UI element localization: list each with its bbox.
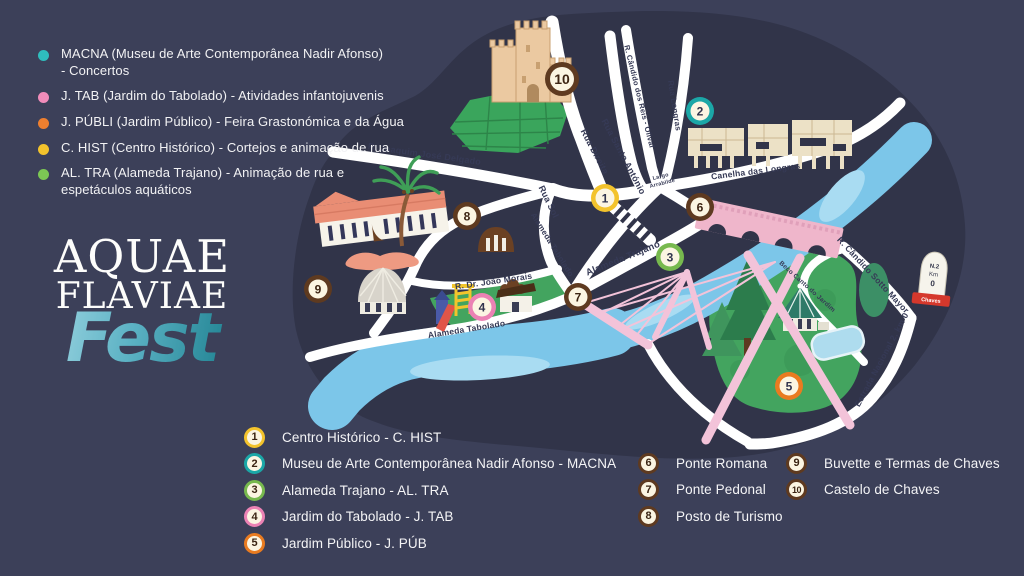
map-marker-6: 6 bbox=[686, 193, 714, 221]
activities-legend: MACNA (Museu de Arte Contemporânea Nadir… bbox=[38, 46, 410, 198]
location-label: Museu de Arte Contemporânea Nadir Afonso… bbox=[282, 456, 616, 471]
activity-label: AL. TRA (Alameda Trajano) - Animação de … bbox=[61, 165, 344, 198]
map-marker-2: 2 bbox=[686, 97, 714, 125]
activity-label: C. HIST (Centro Histórico) - Cortejos e … bbox=[61, 140, 389, 157]
map-marker-7: 7 bbox=[564, 283, 592, 311]
map-marker-1: 1 bbox=[591, 184, 619, 212]
svg-text:4: 4 bbox=[479, 300, 486, 314]
festival-map-poster: N.2 Km 0 Chaves R. Joaquim José DelgadoR… bbox=[0, 0, 1024, 576]
location-number-badge: 10 bbox=[786, 479, 807, 500]
location-number-badge: 7 bbox=[638, 479, 659, 500]
location-legend-item: 2Museu de Arte Contemporânea Nadir Afons… bbox=[244, 451, 616, 478]
activity-legend-item: AL. TRA (Alameda Trajano) - Animação de … bbox=[38, 165, 410, 198]
activity-legend-item: J. TAB (Jardim do Tabolado) - Atividades… bbox=[38, 88, 410, 105]
location-label: Jardim Público - J. PÚB bbox=[282, 536, 427, 551]
location-label: Castelo de Chaves bbox=[824, 482, 940, 497]
location-number-badge: 8 bbox=[638, 506, 659, 527]
location-legend-item: 9Buvette e Termas de Chaves bbox=[786, 450, 1000, 477]
milestone-n2: N.2 bbox=[929, 264, 940, 271]
location-number-badge: 6 bbox=[638, 453, 659, 474]
location-legend-item: 4Jardim do Tabolado - J. TAB bbox=[244, 504, 616, 531]
location-label: Posto de Turismo bbox=[676, 509, 783, 524]
activity-dot-icon bbox=[38, 169, 49, 180]
svg-text:10: 10 bbox=[554, 71, 570, 87]
location-legend-item: 6Ponte Romana bbox=[638, 450, 783, 477]
locations-legend-column-3: 9Buvette e Termas de Chaves10Castelo de … bbox=[786, 450, 1000, 503]
activity-legend-item: J. PÚBLI (Jardim Público) - Feira Grasto… bbox=[38, 114, 410, 131]
activity-label: J. PÚBLI (Jardim Público) - Feira Grasto… bbox=[61, 114, 404, 131]
location-legend-item: 7Ponte Pedonal bbox=[638, 477, 783, 504]
location-legend-item: 1Centro Histórico - C. HIST bbox=[244, 424, 616, 451]
festival-logo: AQUAE FLAVIAE Fest bbox=[28, 236, 256, 371]
logo-aquae: AQUAE bbox=[28, 236, 256, 279]
map-marker-9: 9 bbox=[304, 275, 332, 303]
svg-text:9: 9 bbox=[315, 282, 322, 296]
location-legend-item: 8Posto de Turismo bbox=[638, 503, 783, 530]
map-marker-3: 3 bbox=[656, 243, 684, 271]
location-number-badge: 4 bbox=[244, 506, 265, 527]
svg-text:5: 5 bbox=[786, 379, 793, 393]
location-label: Buvette e Termas de Chaves bbox=[824, 456, 1000, 471]
svg-text:6: 6 bbox=[697, 200, 704, 214]
svg-text:7: 7 bbox=[575, 290, 582, 304]
location-legend-item: 10Castelo de Chaves bbox=[786, 477, 1000, 504]
svg-text:1: 1 bbox=[602, 191, 609, 205]
activity-legend-item: C. HIST (Centro Histórico) - Cortejos e … bbox=[38, 140, 410, 157]
location-legend-item: 5Jardim Público - J. PÚB bbox=[244, 530, 616, 557]
location-number-badge: 5 bbox=[244, 533, 265, 554]
map-marker-4: 4 bbox=[468, 293, 496, 321]
location-label: Ponte Pedonal bbox=[676, 482, 766, 497]
location-number-badge: 2 bbox=[244, 453, 265, 474]
activity-label: J. TAB (Jardim do Tabolado) - Atividades… bbox=[61, 88, 384, 105]
activity-dot-icon bbox=[38, 118, 49, 129]
activity-dot-icon bbox=[38, 144, 49, 155]
activity-label: MACNA (Museu de Arte Contemporânea Nadir… bbox=[61, 46, 383, 79]
locations-legend-column-1: 1Centro Histórico - C. HIST2Museu de Art… bbox=[244, 424, 616, 557]
location-label: Jardim do Tabolado - J. TAB bbox=[282, 509, 454, 524]
location-legend-item: 3Alameda Trajano - AL. TRA bbox=[244, 477, 616, 504]
activity-dot-icon bbox=[38, 92, 49, 103]
location-number-badge: 1 bbox=[244, 427, 265, 448]
activity-dot-icon bbox=[38, 50, 49, 61]
milestone-km: Km bbox=[929, 272, 939, 279]
location-number-badge: 9 bbox=[786, 453, 807, 474]
map-marker-5: 5 bbox=[775, 372, 803, 400]
location-label: Alameda Trajano - AL. TRA bbox=[282, 483, 449, 498]
map-marker-10: 10 bbox=[545, 62, 579, 96]
svg-text:3: 3 bbox=[667, 250, 674, 264]
svg-text:2: 2 bbox=[697, 104, 704, 118]
svg-text:8: 8 bbox=[464, 209, 471, 223]
location-number-badge: 3 bbox=[244, 480, 265, 501]
activity-legend-item: MACNA (Museu de Arte Contemporânea Nadir… bbox=[38, 46, 410, 79]
locations-legend-column-2: 6Ponte Romana7Ponte Pedonal8Posto de Tur… bbox=[638, 450, 783, 530]
location-label: Ponte Romana bbox=[676, 456, 767, 471]
map-marker-8: 8 bbox=[453, 202, 481, 230]
location-label: Centro Histórico - C. HIST bbox=[282, 430, 441, 445]
